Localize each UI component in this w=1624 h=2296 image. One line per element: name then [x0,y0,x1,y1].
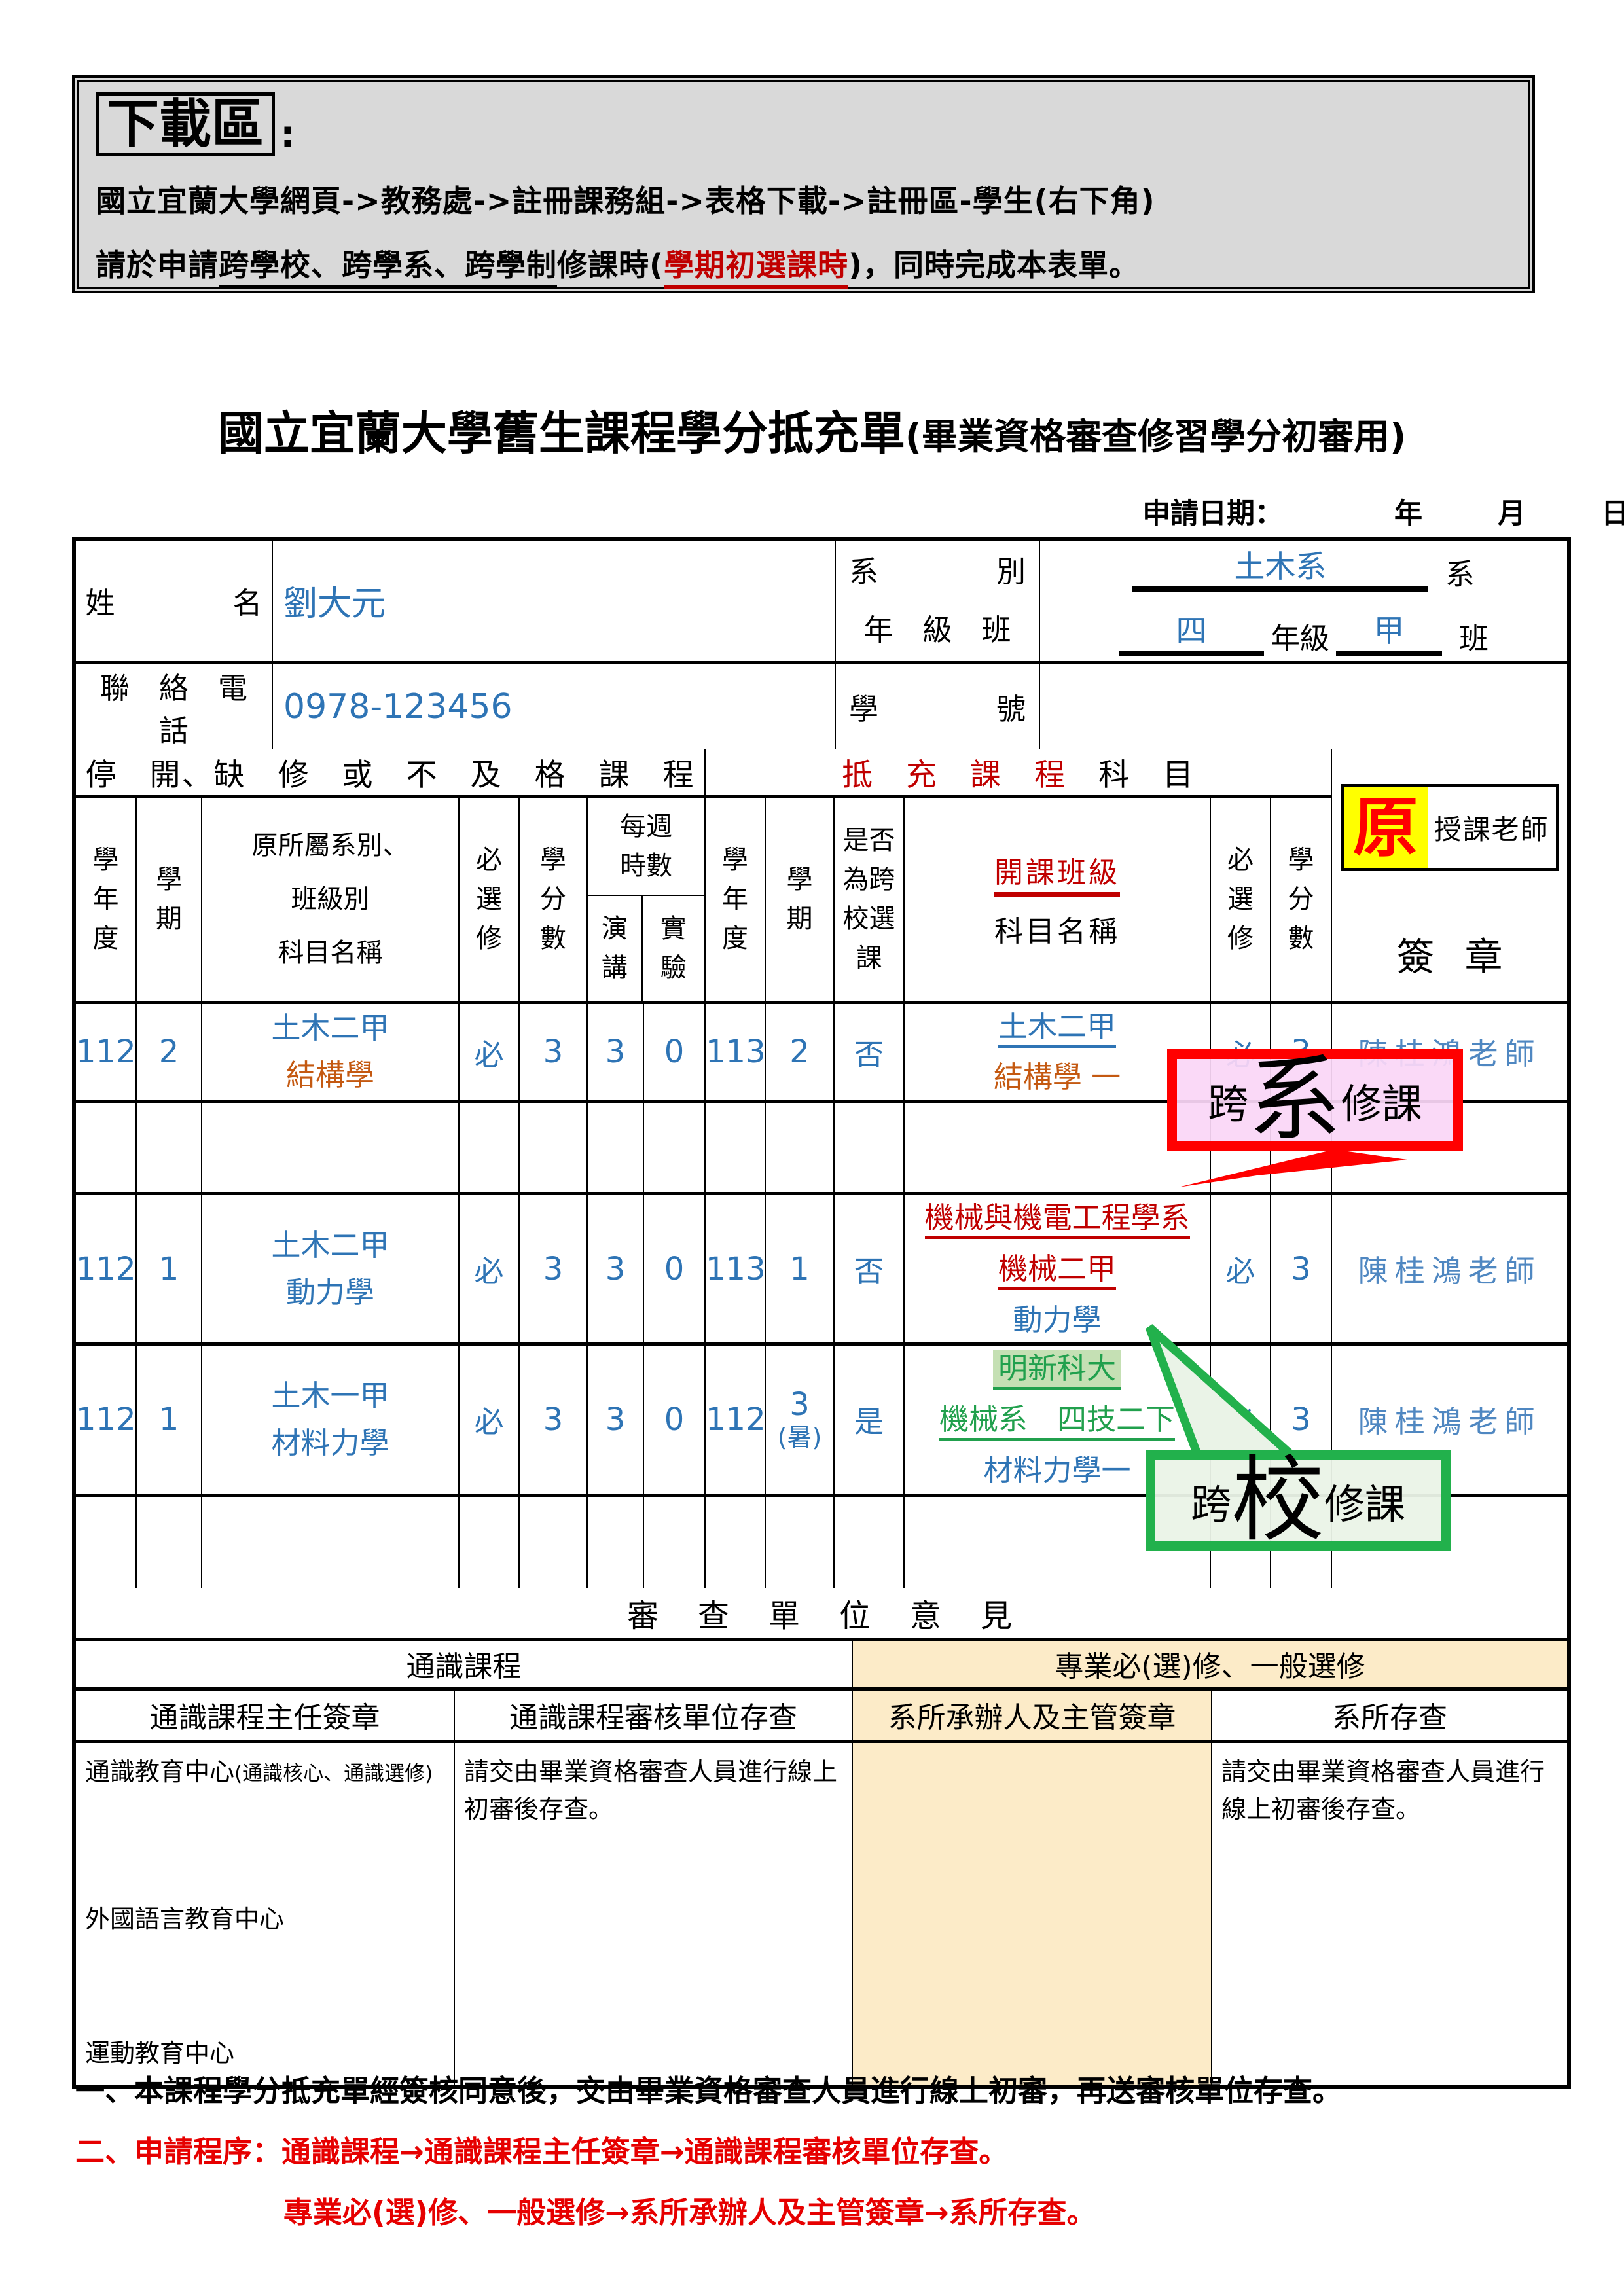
empty-cell [519,1102,587,1194]
course-row-2: 112 1 土木二甲 動力學 必 3 3 0 113 1 否 機械與機電工程學系… [76,1194,1567,1344]
cell-term2: 1 [765,1194,834,1344]
apply-date-month: 月 [1498,497,1526,530]
hdr-credits2: 學分數 [1271,796,1331,1002]
empty-cell [519,1495,587,1588]
notice-mid: 修課時( [557,247,664,283]
cross-school-bubble-tail-icon [1140,1321,1300,1461]
grade-class-line: 四年級甲班 [1040,614,1567,656]
cell-term2: 3 (暑) [765,1344,834,1495]
cell-new-course: 土木二甲 結構學 一 [904,1002,1210,1102]
footer-notes: 一、本課程學分抵充單經簽核同意後，交由畢業資格審查人員進行線上初審，再送審核單位… [75,2067,1581,2231]
download-box-inner: 下載區: 國立宜蘭大學網頁->教務處->註冊課務組->表格下載->註冊區-學生(… [77,80,1530,289]
cell-year: 112 [76,1344,136,1495]
apply-date-label: 申請日期： [1142,497,1283,530]
empty-cell [459,1495,519,1588]
cell-term: 2 [136,1002,202,1102]
download-notice-line: 請於申請跨學校、跨學系、跨學制修課時(學期初選課時)，同時完成本表單。 [96,242,1511,285]
substitute-black: 科 目 [1098,757,1195,793]
download-title: 下載區 [96,92,275,156]
apply-date-year: 年 [1394,497,1422,530]
notice-prefix: 請於申請 [96,247,219,283]
student-info-table: 姓 名 劉大元 系 別 年 級 班 土木系系 四年級甲班 聯 絡 電 話 [76,541,1567,749]
cell-lecture: 3 [587,1344,643,1495]
cell-year2: 113 [705,1194,765,1344]
cell-required: 必 [459,1002,519,1102]
sid-label: 學 號 [835,662,1039,749]
sid-value[interactable] [1039,662,1567,749]
cell-credits: 3 [519,1002,587,1102]
cell-lecture: 3 [587,1002,643,1102]
review-general-sign-area[interactable]: 通識教育中心(通識核心、通識選修) 外國語言教育中心 運動教育中心 [76,1741,454,2085]
empty-cell [834,1495,904,1588]
cell-lab: 0 [643,1344,705,1495]
main-form: 姓 名 劉大元 系 別 年 級 班 土木系系 四年級甲班 聯 絡 電 話 [72,537,1571,2089]
dept-value-blank[interactable]: 土木系 [1132,550,1428,592]
download-box: 下載區: 國立宜蘭大學網頁->教務處->註冊課務組->表格下載->註冊區-學生(… [72,75,1535,293]
form-page: 下載區: 國立宜蘭大學網頁->教務處->註冊課務組->表格下載->註冊區-學生(… [0,0,1624,2296]
cell-orig-course: 土木一甲 材料力學 [202,1344,459,1495]
cell-credits: 3 [519,1344,587,1495]
cross-dept-callout: 跨系修課 [1167,1049,1463,1151]
hdr-term2: 學期 [765,796,834,1002]
cell-orig-course: 土木二甲 動力學 [202,1194,459,1344]
hdr-term: 學期 [136,796,202,1002]
class-value-blank[interactable]: 甲 [1336,614,1442,656]
hdr-required: 必選修 [459,796,519,1002]
general-center-1: 通識教育中心(通識核心、通識選修) [85,1753,444,1791]
dept-label-line2: 年 級 班 [836,615,1039,645]
hdr-new-class: 開課班級 科目名稱 [904,796,1210,1002]
empty-cell [765,1495,834,1588]
dept-label-line1: 系 別 [836,557,1039,586]
cell-term: 1 [136,1194,202,1344]
empty-cell [76,1102,136,1194]
general-center-2: 外國語言教育中心 [85,1901,444,1938]
review-general-header: 通識課程 [76,1639,852,1689]
cell-cross: 否 [834,1194,904,1344]
grade-label: 年級 [1271,622,1329,656]
sign-label: 簽章 [1332,926,1567,981]
hdr-required2: 必選修 [1210,796,1271,1002]
empty-cell [705,1495,765,1588]
section-header-dropped: 停 開、缺 修 或 不 及 格 課 程 [76,749,705,797]
cell-lab: 0 [643,1194,705,1344]
empty-cell [587,1495,643,1588]
note-1: 一、本課程學分抵充單經簽核同意後，交由畢業資格審查人員進行線上初審，再送審核單位… [75,2067,1581,2109]
section-header-substitute: 抵 充 課 程 科 目 [705,749,1331,797]
hdr-weekly-hours: 每週時數 演講 實驗 [587,796,705,1002]
review-dept-sign-area[interactable] [852,1741,1212,2085]
name-value[interactable]: 劉大元 [272,541,835,662]
empty-cell [765,1102,834,1194]
hdr-year2: 學年度 [705,796,765,1002]
review-sub-1: 通識課程主任簽章 [76,1689,454,1741]
review-general-archive-area[interactable]: 請交由畢業資格審查人員進行線上初審後存查。 [454,1741,852,2085]
phone-value[interactable]: 0978-123456 [272,662,835,749]
cell-required: 必 [459,1194,519,1344]
hdr-credits: 學分數 [519,796,587,1002]
review-dept-archive-area[interactable]: 請交由畢業資格審查人員進行線上初審後存查。 [1212,1741,1567,2085]
cell-teacher-sign[interactable]: 陳桂鴻老師 [1331,1194,1567,1344]
cell-credits: 3 [519,1194,587,1344]
note-2: 二、申請程序：通識課程→通識課程主任簽章→通識課程審核單位存查。 [75,2128,1581,2170]
review-professional-header: 專業必(選)修、一般選修 [852,1639,1567,1689]
hdr-cross-school: 是否為跨校選課 [834,796,904,1002]
apply-date: 申請日期：年月日 [1142,491,1624,531]
page-title: 國立宜蘭大學舊生課程學分抵充單(畢業資格審查修習學分初審用) [0,397,1624,463]
empty-cell [136,1495,202,1588]
cell-year2: 112 [705,1344,765,1495]
empty-cell [202,1102,459,1194]
hdr-lecture: 演講 [588,896,643,1001]
cross-dept-bubble-tail-icon [1178,1149,1414,1191]
review-header: 審 查 單 位 意 見 [76,1588,1567,1639]
dept-grade-label: 系 別 年 級 班 [835,541,1039,662]
review-sub-3: 系所承辦人及主管簽章 [852,1689,1212,1741]
grade-value-blank[interactable]: 四 [1119,614,1264,656]
empty-cell [136,1102,202,1194]
dept-grade-value: 土木系系 四年級甲班 [1039,541,1567,662]
cell-lab: 0 [643,1002,705,1102]
empty-cell [76,1495,136,1588]
empty-cell [643,1495,705,1588]
notice-suffix: )，同時完成本表單。 [848,247,1140,283]
cross-school-callout: 跨校修課 [1146,1450,1451,1551]
empty-cell [587,1102,643,1194]
substitute-red: 抵 充 課 程 [842,757,1066,797]
cell-year2: 113 [705,1002,765,1102]
orig-teacher-box: 原 授課老師 [1341,784,1559,871]
page-title-paren: (畢業資格審查修習學分初審用) [905,416,1406,457]
hdr-lab: 實驗 [643,896,704,1001]
apply-date-day: 日 [1601,497,1624,530]
download-colon: : [280,112,295,156]
cell-cross: 是 [834,1344,904,1495]
empty-cell [459,1102,519,1194]
weekly-hours-split: 演講 實驗 [588,895,704,1001]
hdr-orig-course: 原所屬系別、 班級別 科目名稱 [202,796,459,1002]
notice-underlined: 跨學校、跨學系、跨學制 [219,247,557,289]
hdr-year: 學年度 [76,796,136,1002]
download-path-line: 國立宜蘭大學網頁->教務處->註冊課務組->表格下載->註冊區-學生(右下角) [96,177,1511,221]
phone-label: 聯 絡 電 話 [76,662,272,749]
cell-required: 必 [459,1344,519,1495]
dept-value-line: 土木系系 [1040,550,1567,592]
cell-cross: 否 [834,1002,904,1102]
cell-term2: 2 [765,1002,834,1102]
dept-suffix: 系 [1445,558,1475,592]
cell-orig-course: 土木二甲 結構學 [202,1002,459,1102]
empty-cell [904,1102,1210,1194]
empty-cell [705,1102,765,1194]
cell-year: 112 [76,1194,136,1344]
empty-cell [834,1102,904,1194]
download-title-row: 下載區: [96,92,1511,156]
cell-term: 1 [136,1344,202,1495]
review-sub-4: 系所存查 [1212,1689,1567,1741]
note-3: 專業必(選)修、一般選修→系所承辦人及主管簽章→系所存查。 [75,2189,1581,2231]
name-label: 姓 名 [76,541,272,662]
teacher-sign-header: 原 授課老師 簽章 [1331,749,1567,1003]
orig-highlight: 原 [1344,787,1428,868]
general-center-3: 運動教育中心 [85,2035,444,2072]
review-sub-2: 通識課程審核單位存查 [454,1689,852,1741]
class-suffix: 班 [1459,622,1489,656]
empty-cell [202,1495,459,1588]
cell-lecture: 3 [587,1194,643,1344]
page-title-main: 國立宜蘭大學舊生課程學分抵充單 [218,406,905,460]
teacher-label: 授課老師 [1428,787,1556,868]
review-table: 審 查 單 位 意 見 通識課程 專業必(選)修、一般選修 通識課程主任簽章 通… [76,1588,1567,2085]
weekly-hours-label: 每週時數 [588,798,704,895]
cell-year: 112 [76,1002,136,1102]
notice-red: 學期初選課時 [664,247,848,289]
empty-cell [643,1102,705,1194]
